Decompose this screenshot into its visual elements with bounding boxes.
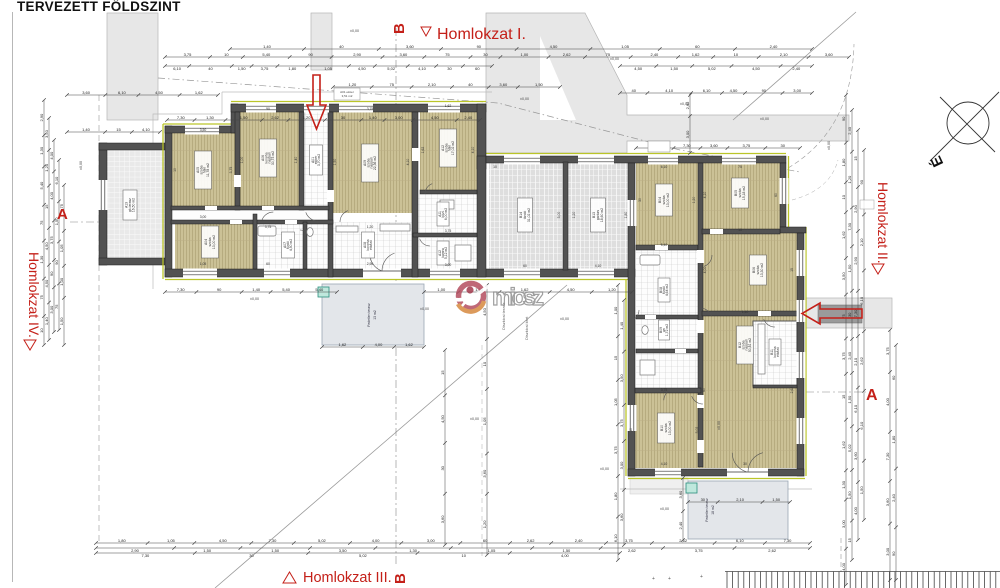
svg-text:40: 40 xyxy=(468,82,473,87)
svg-text:1,80: 1,80 xyxy=(613,492,618,501)
svg-text:1,80: 1,80 xyxy=(288,66,297,71)
svg-text:3,75: 3,75 xyxy=(743,143,752,148)
svg-text:4,64 m2: 4,64 m2 xyxy=(665,284,669,296)
svg-text:60: 60 xyxy=(475,66,480,71)
svg-text:2,90: 2,90 xyxy=(353,52,362,57)
svg-text:Fedetlen terasz: Fedetlen terasz xyxy=(367,303,371,327)
svg-text:±0,00: ±0,00 xyxy=(717,421,721,430)
svg-text:3,50: 3,50 xyxy=(200,128,207,132)
svg-text:10: 10 xyxy=(734,52,739,57)
svg-text:2,10: 2,10 xyxy=(859,238,864,247)
svg-text:30: 30 xyxy=(483,52,488,57)
svg-text:2,10: 2,10 xyxy=(428,82,437,87)
svg-text:5,02: 5,02 xyxy=(318,538,327,543)
svg-text:40: 40 xyxy=(208,66,213,71)
svg-text:1,30: 1,30 xyxy=(409,548,418,553)
svg-text:Homlokzat IV.: Homlokzat IV. xyxy=(26,252,42,338)
svg-text:15: 15 xyxy=(853,156,858,161)
svg-text:1,05: 1,05 xyxy=(482,417,487,426)
svg-text:2,10: 2,10 xyxy=(736,497,745,502)
svg-text:1,50: 1,50 xyxy=(847,264,852,273)
svg-text:3,75: 3,75 xyxy=(695,548,704,553)
svg-text:15: 15 xyxy=(841,394,846,399)
svg-text:3,60: 3,60 xyxy=(482,469,487,478)
svg-text:40: 40 xyxy=(631,88,636,93)
svg-text:1,05: 1,05 xyxy=(613,397,618,406)
svg-text:2,40: 2,40 xyxy=(678,521,683,530)
svg-text:10: 10 xyxy=(173,168,177,172)
svg-text:3,50: 3,50 xyxy=(339,548,348,553)
svg-text:3,50: 3,50 xyxy=(619,374,624,383)
svg-text:3,60: 3,60 xyxy=(678,490,683,499)
svg-text:5,40: 5,40 xyxy=(39,181,44,190)
svg-text:15,18 m2: 15,18 m2 xyxy=(742,186,746,200)
svg-text:7,30: 7,30 xyxy=(847,222,852,231)
svg-text:75: 75 xyxy=(445,52,450,57)
svg-text:75: 75 xyxy=(738,165,742,169)
svg-text:3,00: 3,00 xyxy=(885,547,890,556)
svg-text:3,60: 3,60 xyxy=(619,513,624,522)
svg-text:1,40: 1,40 xyxy=(263,44,272,49)
svg-text:6,10: 6,10 xyxy=(118,90,127,95)
svg-text:2,40: 2,40 xyxy=(792,66,801,71)
svg-text:1,50: 1,50 xyxy=(271,548,280,553)
svg-text:30: 30 xyxy=(341,115,346,120)
svg-text:90: 90 xyxy=(49,271,54,276)
svg-text:5,02: 5,02 xyxy=(387,66,396,71)
svg-text:13,00 m2: 13,00 m2 xyxy=(666,193,670,207)
svg-text:Homlokzat III.: Homlokzat III. xyxy=(303,570,392,586)
svg-text:90: 90 xyxy=(859,179,864,184)
svg-text:1,05: 1,05 xyxy=(167,538,176,543)
svg-text:4,50: 4,50 xyxy=(550,44,559,49)
svg-text:6,10: 6,10 xyxy=(853,404,858,413)
svg-text:4,00: 4,00 xyxy=(375,342,384,347)
svg-text:3,60: 3,60 xyxy=(710,143,719,148)
svg-text:7,30: 7,30 xyxy=(784,538,793,543)
svg-text:1,40: 1,40 xyxy=(742,310,749,314)
svg-text:±0,00: ±0,00 xyxy=(610,57,619,61)
svg-text:±0,00: ±0,00 xyxy=(250,297,259,301)
svg-text:3,75: 3,75 xyxy=(229,167,233,174)
svg-text:1,50: 1,50 xyxy=(670,66,679,71)
svg-text:1,20: 1,20 xyxy=(572,212,576,219)
svg-text:3,00: 3,00 xyxy=(619,461,624,470)
svg-text:5,02: 5,02 xyxy=(695,427,699,434)
svg-text:10: 10 xyxy=(841,194,846,199)
svg-text:1,40: 1,40 xyxy=(82,127,91,132)
svg-text:40: 40 xyxy=(339,44,344,49)
svg-text:90: 90 xyxy=(266,107,270,111)
svg-text:3,70 m2: 3,70 m2 xyxy=(317,154,321,166)
svg-text:3,00: 3,00 xyxy=(685,130,690,139)
svg-text:3,60: 3,60 xyxy=(825,52,834,57)
svg-text:4,10: 4,10 xyxy=(142,127,151,132)
svg-text:1,62: 1,62 xyxy=(405,342,414,347)
svg-text:15: 15 xyxy=(44,204,49,209)
svg-text:2,40: 2,40 xyxy=(464,115,473,120)
svg-text:4,00: 4,00 xyxy=(841,562,846,571)
svg-text:4,10: 4,10 xyxy=(418,66,427,71)
svg-text:3,50: 3,50 xyxy=(44,129,49,138)
svg-text:60: 60 xyxy=(695,44,700,49)
svg-text:90: 90 xyxy=(477,44,482,49)
svg-text:3,00: 3,00 xyxy=(200,215,207,219)
svg-text:1,50: 1,50 xyxy=(847,491,852,500)
svg-text:1,50: 1,50 xyxy=(535,82,544,87)
svg-text:1,05: 1,05 xyxy=(324,66,333,71)
svg-text:1,20: 1,20 xyxy=(608,287,617,292)
svg-text:+: + xyxy=(668,576,671,582)
svg-text:1,00: 1,00 xyxy=(240,157,244,164)
svg-text:TERVEZETT FÖLDSZINT: TERVEZETT FÖLDSZINT xyxy=(17,0,181,14)
svg-text:30: 30 xyxy=(847,312,852,317)
svg-text:1,50: 1,50 xyxy=(847,395,852,404)
svg-text:50,81 m2: 50,81 m2 xyxy=(748,338,752,352)
svg-text:1,00: 1,00 xyxy=(59,277,64,286)
svg-text:75: 75 xyxy=(39,220,44,225)
svg-text:10: 10 xyxy=(482,361,487,366)
svg-text:3,50: 3,50 xyxy=(841,272,846,281)
svg-text:10: 10 xyxy=(493,165,497,169)
svg-text:3,60: 3,60 xyxy=(499,82,508,87)
svg-text:A: A xyxy=(57,206,68,223)
svg-text:1,30: 1,30 xyxy=(841,480,846,489)
svg-text:1,00: 1,00 xyxy=(613,306,618,315)
svg-text:2,40: 2,40 xyxy=(575,538,584,543)
svg-text:4,00: 4,00 xyxy=(372,538,381,543)
svg-text:2,90: 2,90 xyxy=(853,204,858,213)
svg-text:1,62: 1,62 xyxy=(841,440,846,449)
svg-text:3,75: 3,75 xyxy=(661,388,668,392)
svg-text:±0,00: ±0,00 xyxy=(600,467,609,471)
svg-text:7,30: 7,30 xyxy=(885,452,890,461)
svg-text:4,50: 4,50 xyxy=(44,279,49,288)
svg-text:Homlokzat I.: Homlokzat I. xyxy=(437,26,526,43)
svg-text:+: + xyxy=(652,576,655,582)
svg-text:4,50: 4,50 xyxy=(634,66,643,71)
svg-text:2,62: 2,62 xyxy=(527,538,536,543)
svg-text:3,00: 3,00 xyxy=(841,519,846,528)
svg-text:90: 90 xyxy=(841,116,846,121)
svg-text:1,00: 1,00 xyxy=(437,287,446,292)
svg-text:2,62: 2,62 xyxy=(768,548,777,553)
svg-text:1,62: 1,62 xyxy=(339,342,348,347)
svg-text:6,00 m2: 6,00 m2 xyxy=(444,208,448,220)
svg-text:3,75: 3,75 xyxy=(619,418,624,427)
svg-text:B: B xyxy=(392,573,409,584)
svg-text:1,62: 1,62 xyxy=(195,90,204,95)
svg-text:1,80: 1,80 xyxy=(624,212,628,219)
svg-text:1,40: 1,40 xyxy=(619,321,624,330)
svg-text:2,90: 2,90 xyxy=(367,262,374,266)
svg-text:4,50: 4,50 xyxy=(219,538,228,543)
svg-text:3,51 m2: 3,51 m2 xyxy=(342,94,353,98)
svg-text:1,62: 1,62 xyxy=(421,147,425,154)
svg-text:1,80: 1,80 xyxy=(841,158,846,167)
svg-text:1,00: 1,00 xyxy=(521,52,530,57)
svg-text:60: 60 xyxy=(266,262,270,266)
svg-text:1,50: 1,50 xyxy=(240,115,249,120)
svg-text:2,40: 2,40 xyxy=(847,351,852,360)
svg-text:4,50: 4,50 xyxy=(440,414,445,423)
svg-text:1,80: 1,80 xyxy=(891,435,896,444)
svg-text:18,60 m2: 18,60 m2 xyxy=(600,208,604,222)
svg-text:4,00: 4,00 xyxy=(49,191,54,200)
svg-text:13 m2: 13 m2 xyxy=(373,310,377,320)
svg-text:30: 30 xyxy=(447,66,452,71)
svg-text:1,05: 1,05 xyxy=(621,44,630,49)
svg-text:1,62: 1,62 xyxy=(692,52,701,57)
svg-text:1,72 m2: 1,72 m2 xyxy=(665,324,669,336)
svg-text:31,02 m2: 31,02 m2 xyxy=(527,208,531,222)
svg-text:2,62: 2,62 xyxy=(628,548,637,553)
svg-text:10: 10 xyxy=(461,553,466,558)
svg-text:2,40: 2,40 xyxy=(891,493,896,502)
svg-text:18 m2: 18 m2 xyxy=(711,505,715,515)
svg-text:Diszkicsi kert: Diszkicsi kert xyxy=(524,316,529,340)
svg-text:1,50: 1,50 xyxy=(333,159,337,166)
svg-text:1,20: 1,20 xyxy=(349,82,358,87)
svg-text:3,75: 3,75 xyxy=(367,107,374,111)
svg-text:1,50: 1,50 xyxy=(203,548,212,553)
svg-text:90: 90 xyxy=(217,287,222,292)
svg-text:3,60: 3,60 xyxy=(82,90,91,95)
svg-text:4,00: 4,00 xyxy=(561,553,570,558)
svg-text:3,75: 3,75 xyxy=(841,351,846,360)
svg-text:6,10: 6,10 xyxy=(859,421,864,430)
svg-text:3,60: 3,60 xyxy=(885,498,890,507)
svg-text:miosz: miosz xyxy=(492,284,544,311)
svg-text:étkezö: étkezö xyxy=(776,347,780,357)
svg-text:90: 90 xyxy=(762,88,767,93)
svg-text:15: 15 xyxy=(116,127,121,132)
svg-text:15: 15 xyxy=(613,355,618,360)
svg-text:3,00: 3,00 xyxy=(445,263,452,267)
svg-text:3,00: 3,00 xyxy=(557,212,561,219)
svg-text:1,30: 1,30 xyxy=(39,146,44,155)
svg-text:1,80: 1,80 xyxy=(118,538,127,543)
svg-text:4,00: 4,00 xyxy=(49,151,54,160)
svg-text:4,50: 4,50 xyxy=(730,88,739,93)
svg-text:2,90: 2,90 xyxy=(39,113,44,122)
svg-text:10: 10 xyxy=(224,52,229,57)
svg-text:étkezö: étkezö xyxy=(369,240,373,250)
svg-text:±0,00: ±0,00 xyxy=(660,507,669,511)
svg-text:17,02 m2: 17,02 m2 xyxy=(451,141,455,155)
svg-text:3,60: 3,60 xyxy=(406,44,415,49)
svg-text:2,40: 2,40 xyxy=(651,52,660,57)
svg-text:15: 15 xyxy=(440,370,445,375)
svg-text:6,10: 6,10 xyxy=(661,165,668,169)
svg-text:2,62: 2,62 xyxy=(859,356,864,365)
svg-text:4,50: 4,50 xyxy=(155,90,164,95)
svg-text:±0,00: ±0,00 xyxy=(420,307,429,311)
svg-text:11,78 m2: 11,78 m2 xyxy=(206,163,210,177)
svg-text:30: 30 xyxy=(701,497,706,502)
svg-text:2,62: 2,62 xyxy=(563,52,572,57)
svg-text:6,10: 6,10 xyxy=(859,296,864,305)
svg-text:7,30: 7,30 xyxy=(142,553,151,558)
svg-text:5,02: 5,02 xyxy=(708,66,717,71)
svg-text:2,10: 2,10 xyxy=(853,357,858,366)
svg-text:3,75: 3,75 xyxy=(613,446,618,455)
svg-text:3,60: 3,60 xyxy=(853,451,858,460)
svg-text:90: 90 xyxy=(891,551,896,556)
svg-text:7,30: 7,30 xyxy=(853,309,858,318)
svg-text:2,62: 2,62 xyxy=(679,538,688,543)
svg-text:4,10: 4,10 xyxy=(703,192,707,199)
svg-text:6,10: 6,10 xyxy=(703,88,712,93)
svg-text:30: 30 xyxy=(638,198,642,202)
svg-text:3,60: 3,60 xyxy=(440,515,445,524)
svg-text:3,75: 3,75 xyxy=(184,52,193,57)
svg-text:16,50 m2: 16,50 m2 xyxy=(132,198,136,212)
svg-text:15: 15 xyxy=(790,268,794,272)
svg-text:5,40: 5,40 xyxy=(315,287,324,292)
svg-text:4,10: 4,10 xyxy=(406,159,410,166)
svg-text:Fedetlen terasz: Fedetlen terasz xyxy=(705,498,709,522)
svg-text:±0,00: ±0,00 xyxy=(470,417,479,421)
svg-text:4,50: 4,50 xyxy=(567,287,576,292)
svg-text:75: 75 xyxy=(389,82,394,87)
svg-text:7,30: 7,30 xyxy=(177,115,186,120)
svg-text:1,20: 1,20 xyxy=(367,225,374,229)
svg-text:3,60: 3,60 xyxy=(400,52,409,57)
svg-text:4,50 m2: 4,50 m2 xyxy=(289,239,293,251)
svg-text:60: 60 xyxy=(483,538,488,543)
svg-text:3,75: 3,75 xyxy=(625,538,634,543)
svg-text:90: 90 xyxy=(308,52,313,57)
svg-text:4,50: 4,50 xyxy=(752,66,761,71)
svg-text:1,05: 1,05 xyxy=(200,262,207,266)
svg-text:2,90: 2,90 xyxy=(131,548,140,553)
svg-text:30: 30 xyxy=(780,143,785,148)
svg-text:1,20: 1,20 xyxy=(44,163,49,172)
svg-text:15: 15 xyxy=(847,537,852,542)
svg-text:B: B xyxy=(391,23,408,34)
svg-text:30: 30 xyxy=(440,465,445,470)
svg-text:10: 10 xyxy=(629,428,633,432)
svg-text:±0,00: ±0,00 xyxy=(760,117,769,121)
svg-text:75: 75 xyxy=(54,304,59,309)
svg-text:2,40: 2,40 xyxy=(770,44,779,49)
svg-text:1,05: 1,05 xyxy=(59,244,64,253)
svg-text:1,50: 1,50 xyxy=(859,486,864,495)
svg-text:90: 90 xyxy=(54,260,59,265)
svg-text:13,00 m2: 13,00 m2 xyxy=(668,421,672,435)
svg-text:5,12 m2: 5,12 m2 xyxy=(444,247,448,259)
svg-text:60: 60 xyxy=(523,264,527,268)
svg-text:1,50: 1,50 xyxy=(238,66,247,71)
svg-text:A: A xyxy=(866,387,878,404)
svg-text:7,30: 7,30 xyxy=(269,538,278,543)
svg-text:4,10: 4,10 xyxy=(595,264,602,268)
svg-text:4,10: 4,10 xyxy=(661,462,668,466)
svg-text:3,75: 3,75 xyxy=(265,225,272,229)
svg-text:1,20: 1,20 xyxy=(692,197,696,204)
svg-text:±0,00: ±0,00 xyxy=(680,102,689,106)
svg-text:1,20: 1,20 xyxy=(847,175,852,184)
svg-text:1,50: 1,50 xyxy=(772,497,781,502)
svg-text:30,73 m2: 30,73 m2 xyxy=(271,151,275,165)
svg-text:1,40: 1,40 xyxy=(369,115,378,120)
svg-text:±0,00: ±0,00 xyxy=(827,141,831,150)
svg-text:2,90: 2,90 xyxy=(853,256,858,265)
svg-text:13,30 m2: 13,30 m2 xyxy=(760,263,764,277)
svg-text:22,36 m2: 22,36 m2 xyxy=(373,156,377,170)
svg-text:3,00: 3,00 xyxy=(395,115,404,120)
svg-text:6,10: 6,10 xyxy=(173,66,182,71)
svg-text:6,10: 6,10 xyxy=(736,538,745,543)
svg-text:Homlokzat II.: Homlokzat II. xyxy=(875,182,891,264)
svg-text:2,40: 2,40 xyxy=(847,126,852,135)
svg-text:±0,00: ±0,00 xyxy=(560,317,569,321)
svg-text:1,40: 1,40 xyxy=(252,287,261,292)
svg-text:30: 30 xyxy=(743,462,747,466)
svg-text:3,00: 3,00 xyxy=(793,88,802,93)
svg-text:1,62: 1,62 xyxy=(841,230,846,239)
svg-text:7,30: 7,30 xyxy=(177,287,186,292)
svg-text:1,05: 1,05 xyxy=(488,548,497,553)
svg-text:2,10: 2,10 xyxy=(780,52,789,57)
svg-text:15: 15 xyxy=(738,228,742,232)
svg-text:±0,00: ±0,00 xyxy=(350,29,359,33)
svg-text:3,00: 3,00 xyxy=(427,538,436,543)
svg-text:2,62: 2,62 xyxy=(790,387,794,394)
svg-text:60: 60 xyxy=(891,375,896,380)
svg-text:4,00: 4,00 xyxy=(853,506,858,515)
svg-text:3,75: 3,75 xyxy=(885,346,890,355)
svg-text:3,75: 3,75 xyxy=(49,236,54,245)
svg-text:4,10: 4,10 xyxy=(665,88,674,93)
svg-text:4,10: 4,10 xyxy=(471,147,475,154)
svg-text:1,40: 1,40 xyxy=(294,157,298,164)
svg-text:3,75: 3,75 xyxy=(261,66,270,71)
svg-text:30: 30 xyxy=(249,553,254,558)
svg-text:+: + xyxy=(700,574,703,580)
svg-text:±0,00: ±0,00 xyxy=(79,161,83,170)
svg-text:1,40: 1,40 xyxy=(44,317,49,326)
svg-text:2,62: 2,62 xyxy=(271,115,280,120)
svg-text:5,02: 5,02 xyxy=(847,444,852,453)
svg-text:1,20: 1,20 xyxy=(482,520,487,529)
svg-text:7,30: 7,30 xyxy=(683,143,692,148)
svg-text:5,40: 5,40 xyxy=(262,52,271,57)
svg-text:13,00 m2: 13,00 m2 xyxy=(212,235,216,249)
svg-text:60: 60 xyxy=(774,193,778,197)
svg-text:4,50: 4,50 xyxy=(431,115,440,120)
svg-text:6,10: 6,10 xyxy=(613,534,618,543)
svg-text:4,50: 4,50 xyxy=(358,66,367,71)
svg-text:1,30: 1,30 xyxy=(206,115,215,120)
svg-text:4,00: 4,00 xyxy=(885,397,890,406)
svg-text:1,62: 1,62 xyxy=(445,104,452,108)
svg-text:1,20: 1,20 xyxy=(303,115,312,120)
svg-text:3,75: 3,75 xyxy=(445,229,452,233)
svg-text:5,40: 5,40 xyxy=(661,243,668,247)
svg-text:1,50: 1,50 xyxy=(59,317,64,326)
svg-text:5,40: 5,40 xyxy=(282,287,291,292)
svg-text:60: 60 xyxy=(702,388,706,392)
svg-text:±0,00: ±0,00 xyxy=(520,97,529,101)
svg-text:4,50: 4,50 xyxy=(482,307,487,316)
svg-text:4,00: 4,00 xyxy=(703,267,707,274)
svg-text:6,10: 6,10 xyxy=(54,176,59,185)
svg-text:5,02: 5,02 xyxy=(359,553,368,558)
